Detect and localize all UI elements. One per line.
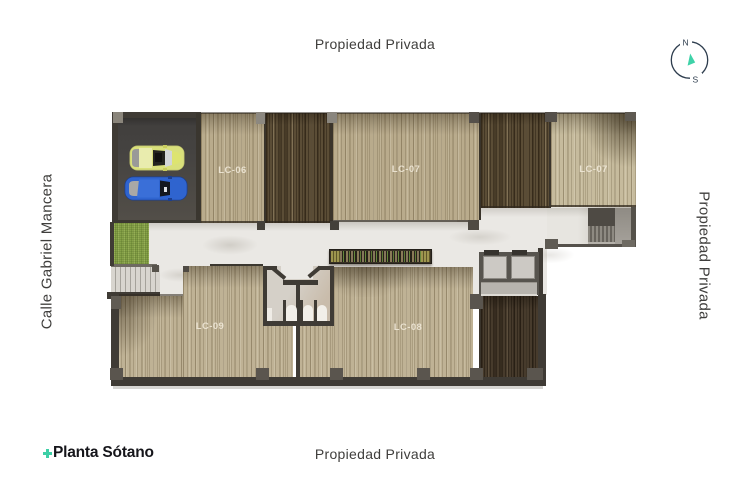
svg-text:S: S — [693, 75, 699, 85]
svg-text:N: N — [683, 38, 689, 48]
